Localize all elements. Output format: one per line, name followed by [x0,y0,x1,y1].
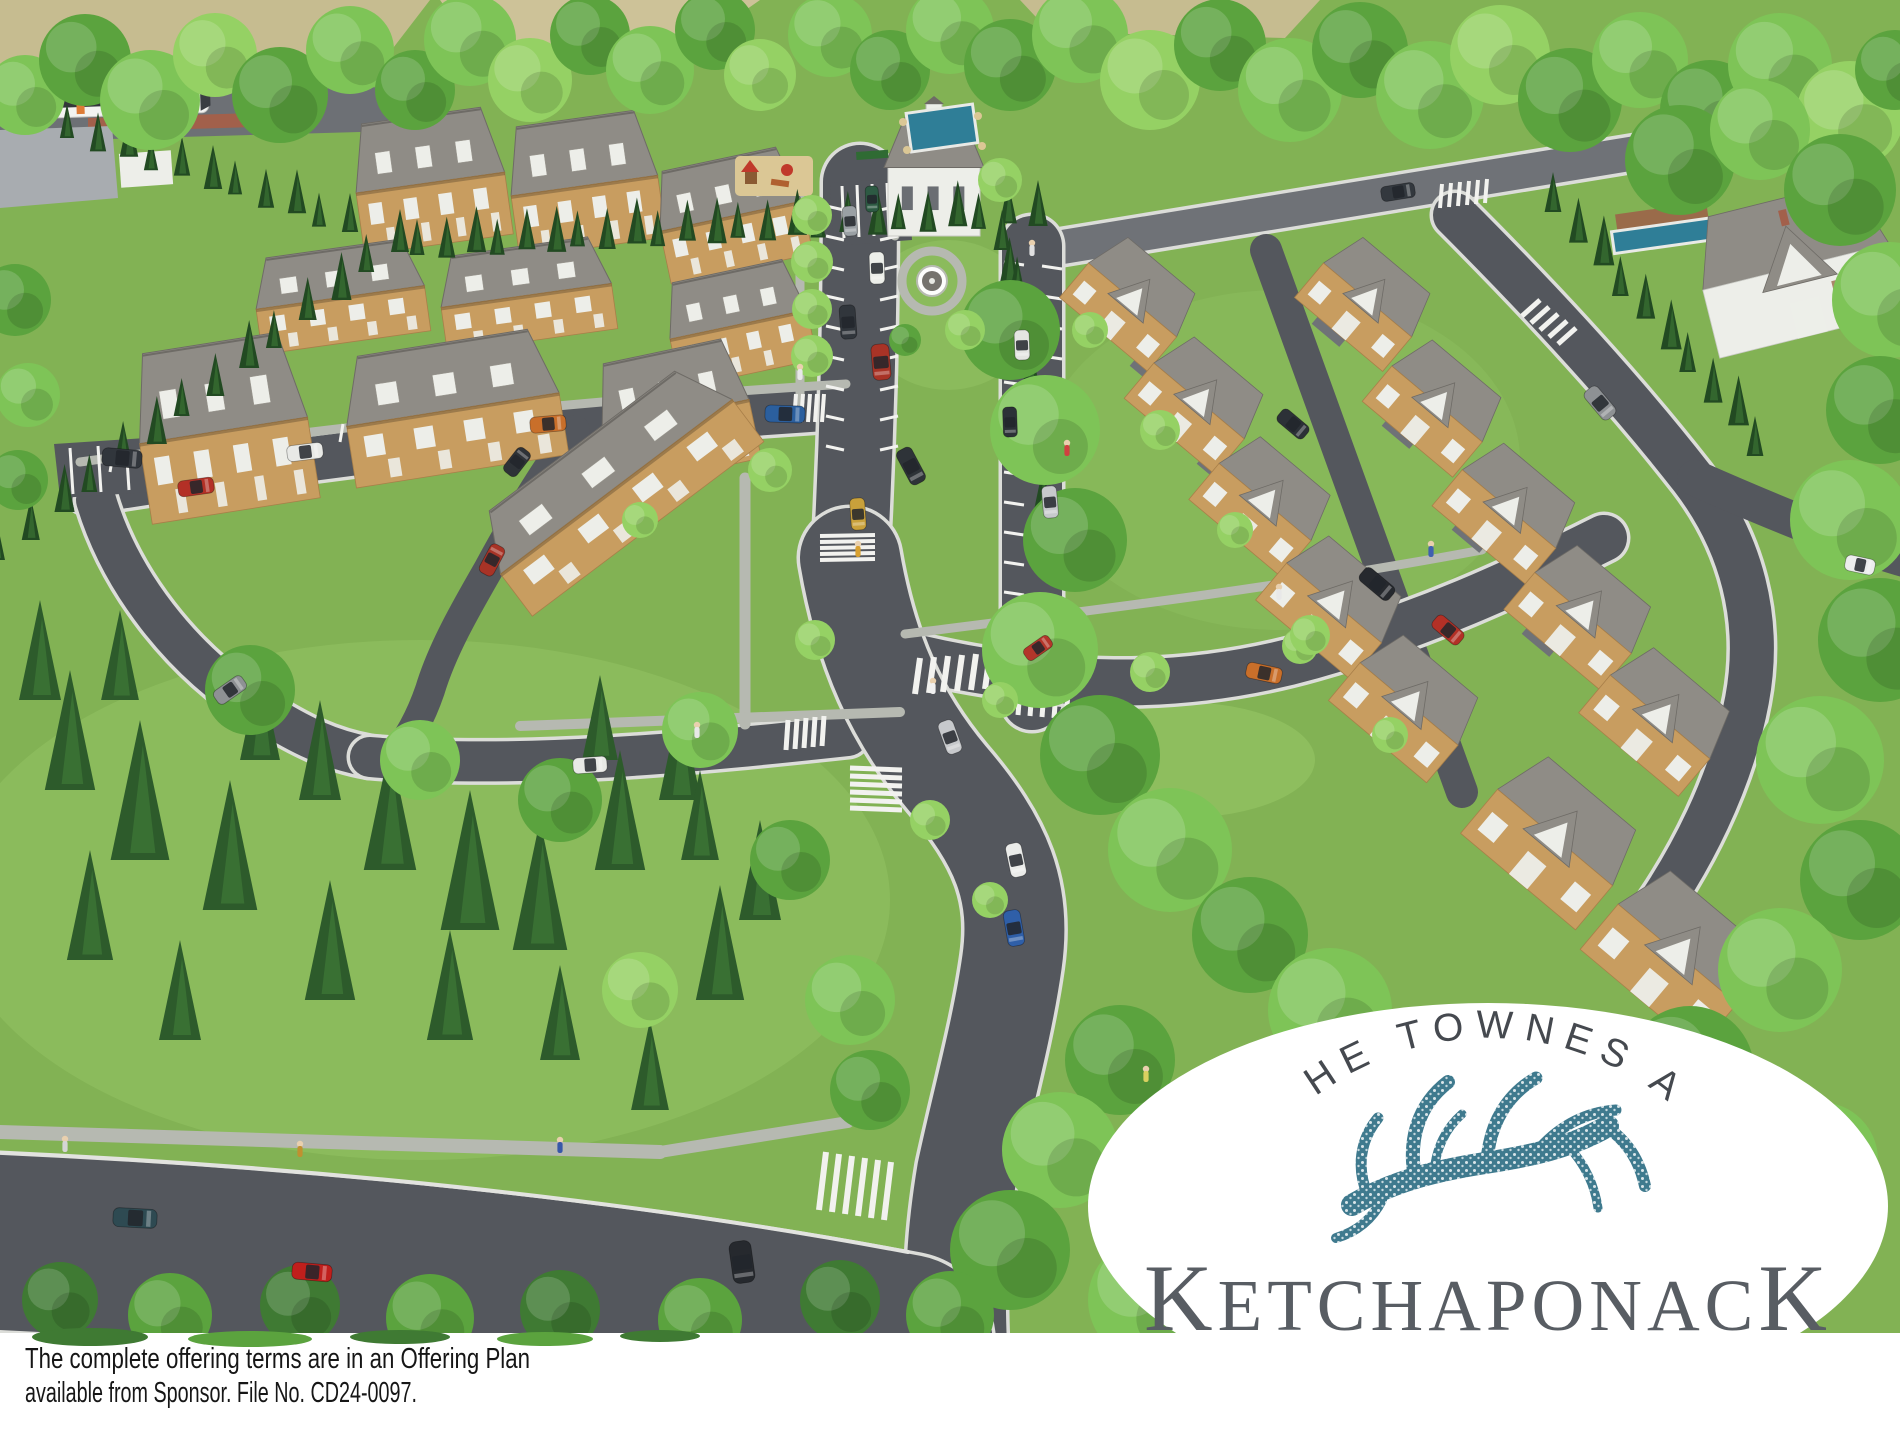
tree [380,720,460,800]
tree [791,241,833,283]
pedestrian [1064,440,1070,456]
tree [792,289,832,329]
car [865,186,879,212]
tree [1290,615,1330,655]
pedestrian [1428,541,1434,557]
car [572,756,607,774]
tree [22,1262,98,1338]
pedestrian [1029,240,1035,256]
tree-overhang [620,1330,700,1342]
car [849,498,866,531]
car [101,447,142,468]
tree [972,882,1008,918]
tree [805,955,895,1045]
tree [1072,312,1108,348]
tree [748,448,792,492]
rendering-page: THE TOWNES AT KETCHAPONACK CONDOMINIUM W… [0,0,1900,1429]
aerial-site-rendering: THE TOWNES AT KETCHAPONACK CONDOMINIUM W… [0,0,1900,1429]
pool-umbrella [974,112,982,120]
tree-overhang [350,1330,450,1344]
tree [602,952,678,1028]
tree [1130,652,1170,692]
tree [792,195,832,235]
car [113,1207,158,1228]
car [870,343,891,380]
tree [982,682,1018,718]
pedestrian [1276,584,1282,600]
tree [1756,696,1884,824]
tree [622,502,658,538]
car [765,405,806,423]
tree [830,1050,910,1130]
tree [910,800,950,840]
tree [1372,717,1408,753]
disclaimer-line-2: available from Sponsor. File No. CD24-00… [25,1377,417,1409]
car [1014,330,1030,361]
tree [945,310,985,350]
tree [889,324,921,356]
pedestrian [930,678,936,694]
pedestrian [694,722,700,738]
gazebo [917,266,947,296]
car [291,1262,332,1282]
tree [724,39,796,111]
townhouse-building [347,105,514,255]
pedestrian [557,1137,563,1153]
tree [795,620,835,660]
tree [1217,512,1253,548]
playground [735,156,813,196]
pedestrian [297,1141,303,1157]
tree [1784,134,1896,246]
tree [1140,410,1180,450]
car [842,206,858,237]
pedestrian [62,1136,68,1152]
tree [800,1260,880,1340]
car [839,304,857,339]
pedestrian [1143,1066,1149,1082]
car [869,252,885,285]
tree [1023,488,1127,592]
tree [662,692,738,768]
pedestrian [855,541,861,557]
car [1041,485,1059,518]
tree [978,158,1022,202]
pool-umbrella [899,118,907,126]
car [529,414,566,433]
tree [750,820,830,900]
pool-umbrella [978,142,986,150]
pedestrian [797,364,803,380]
pool-umbrella [903,146,911,154]
tree [1718,908,1842,1032]
tree [791,335,833,377]
car [1002,407,1017,437]
disclaimer-line-1: The complete offering terms are in an Of… [25,1343,530,1375]
